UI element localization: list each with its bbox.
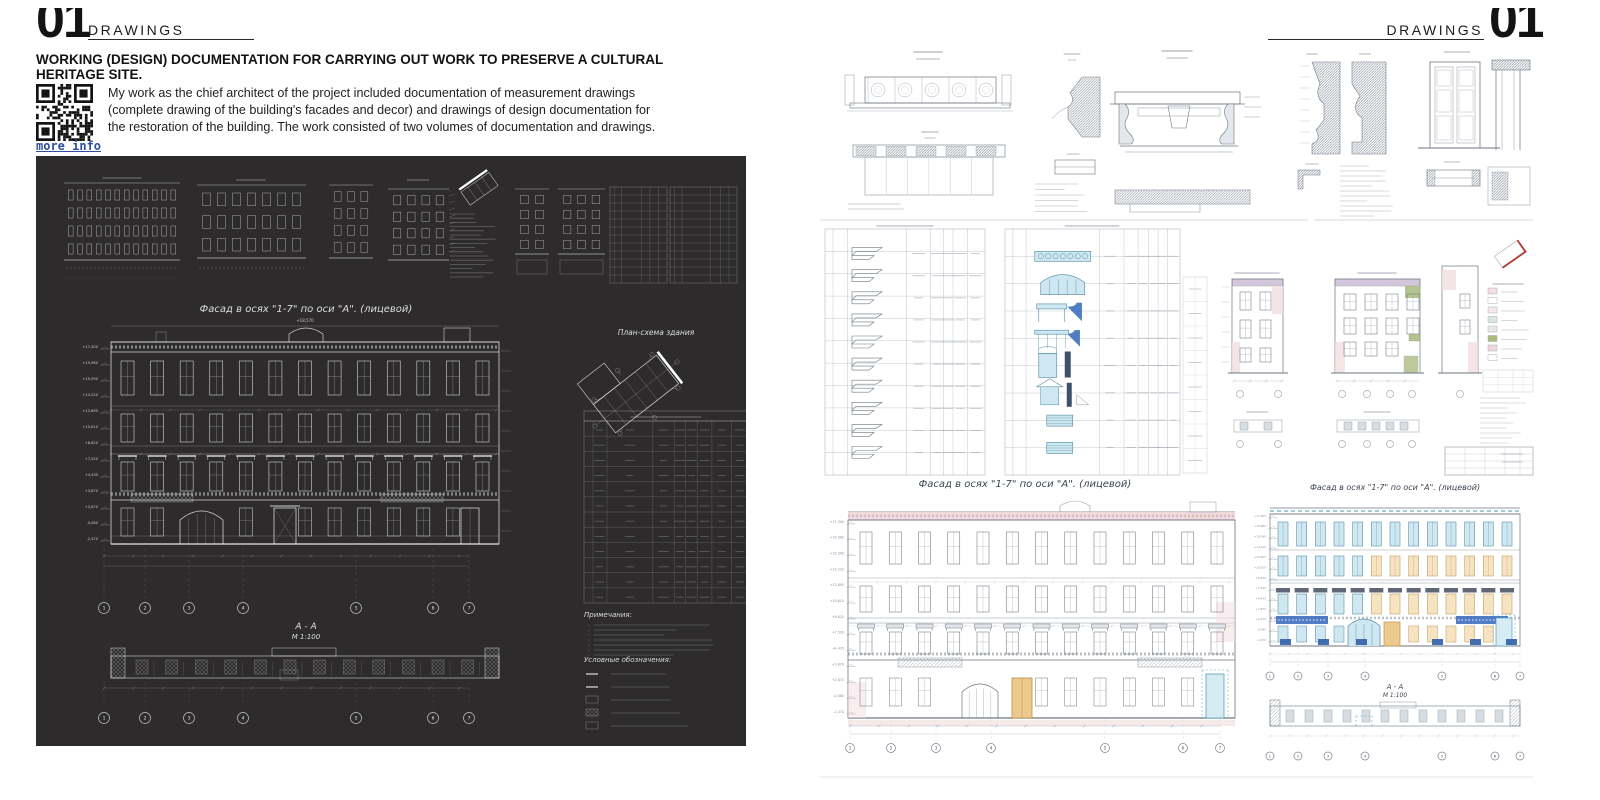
svg-text:+17,300: +17,300 (82, 345, 98, 349)
svg-text:7: 7 (1519, 753, 1522, 758)
svg-text:6: 6 (1494, 673, 1497, 678)
more-info-link[interactable]: more info (36, 139, 101, 153)
svg-text:6: 6 (1182, 745, 1185, 750)
svg-text:•: • (588, 643, 590, 647)
svg-text:•: • (588, 653, 590, 657)
svg-text:+4,435: +4,435 (1256, 596, 1267, 600)
svg-text:5: 5 (1104, 745, 1107, 750)
svg-text:+18,570: +18,570 (296, 318, 314, 323)
svg-text:+10,610: +10,610 (830, 599, 844, 603)
svg-text:+12,895: +12,895 (82, 409, 98, 413)
svg-text:1: 1 (103, 716, 106, 722)
svg-text:+14,220: +14,220 (1254, 545, 1266, 549)
section-label-left: DRAWINGS (88, 22, 184, 38)
svg-text:-2,470: -2,470 (86, 537, 98, 541)
svg-text:3: 3 (188, 606, 191, 612)
svg-text:+10,610: +10,610 (82, 425, 98, 429)
light-sheet-drawing: +17,300+15,980+15,090+14,220+12,895+10,6… (820, 42, 1535, 778)
svg-text:-0,080: -0,080 (833, 694, 844, 698)
svg-text:+12,895: +12,895 (1254, 555, 1266, 559)
svg-text:4: 4 (242, 716, 245, 722)
svg-text:3: 3 (188, 716, 191, 722)
dark-key-plan (459, 170, 498, 205)
svg-text:5: 5 (1441, 753, 1444, 758)
svg-text:3: 3 (935, 745, 938, 750)
svg-text:-0,080: -0,080 (1257, 627, 1266, 631)
portfolio-spread: 01 DRAWINGS WORKING (DESIGN) DOCUMENTATI… (0, 0, 1600, 800)
svg-text:1: 1 (103, 606, 106, 612)
svg-text:+3,870: +3,870 (832, 662, 844, 666)
light-drawing-sheet: +17,300+15,980+15,090+14,220+12,895+10,6… (820, 42, 1535, 778)
section-rule-left (88, 39, 254, 40)
svg-text:+10,610: +10,610 (1254, 565, 1266, 569)
svg-text:3: 3 (1327, 673, 1330, 678)
svg-text:+7,520: +7,520 (1256, 586, 1267, 590)
page-number-right-text: 01 (1489, 8, 1543, 46)
svg-text:3: 3 (1327, 753, 1330, 758)
svg-text:+8,620: +8,620 (85, 441, 99, 445)
svg-text:5: 5 (355, 606, 358, 612)
svg-text:-2,470: -2,470 (1257, 638, 1266, 642)
svg-text:+14,220: +14,220 (82, 393, 98, 397)
svg-text:+8,620: +8,620 (832, 615, 844, 619)
project-description: My work as the chief architect of the pr… (108, 85, 666, 136)
svg-text:5: 5 (355, 716, 358, 722)
svg-text:4: 4 (1364, 753, 1367, 758)
svg-text:+15,090: +15,090 (82, 377, 98, 381)
svg-text:5: 5 (1441, 673, 1444, 678)
section-rule-right (1268, 39, 1484, 40)
page-number-left-text: 01 (36, 8, 90, 46)
svg-text:7: 7 (1219, 745, 1222, 750)
svg-text:1: 1 (1269, 673, 1272, 678)
page-number-left: 01 (36, 8, 90, 46)
svg-text:+2,670: +2,670 (85, 505, 99, 509)
svg-text:-0,080: -0,080 (86, 521, 98, 525)
svg-text:+15,090: +15,090 (830, 551, 844, 555)
svg-text:+2,670: +2,670 (832, 678, 844, 682)
svg-text:4: 4 (1364, 673, 1367, 678)
light-key-plan (1495, 240, 1526, 268)
svg-text:•: • (588, 623, 590, 627)
project-title: WORKING (DESIGN) DOCUMENTATION FOR CARRY… (36, 52, 676, 82)
svg-text:2: 2 (144, 606, 147, 612)
svg-text:2: 2 (890, 745, 893, 750)
svg-text:+7,520: +7,520 (832, 631, 844, 635)
svg-text:+17,300: +17,300 (830, 520, 844, 524)
svg-text:•: • (588, 638, 590, 642)
svg-text:7: 7 (468, 606, 471, 612)
svg-text:+15,090: +15,090 (1254, 534, 1266, 538)
svg-text:7: 7 (468, 716, 471, 722)
svg-text:6: 6 (432, 606, 435, 612)
svg-text:2: 2 (1297, 753, 1300, 758)
svg-text:6: 6 (432, 716, 435, 722)
svg-text:+15,980: +15,980 (1254, 524, 1266, 528)
svg-text:1: 1 (849, 745, 852, 750)
svg-text:+4,435: +4,435 (832, 646, 844, 650)
svg-text:•: • (588, 628, 590, 632)
svg-text:+15,980: +15,980 (82, 361, 98, 365)
svg-text:7: 7 (1519, 673, 1522, 678)
svg-text:•: • (588, 633, 590, 637)
svg-text:+3,870: +3,870 (85, 489, 99, 493)
svg-text:+2,670: +2,670 (1256, 617, 1267, 621)
svg-text:+4,435: +4,435 (85, 473, 98, 477)
svg-text:4: 4 (242, 606, 245, 612)
svg-text:2: 2 (144, 716, 147, 722)
page-number-right: 01 (1489, 8, 1543, 46)
svg-text:+12,895: +12,895 (830, 583, 844, 587)
svg-text:+17,300: +17,300 (1254, 514, 1266, 518)
qr-code (36, 84, 93, 141)
svg-text:+3,870: +3,870 (1256, 607, 1267, 611)
dark-drawing-sheet: +18,570+17,300+15,980+15,090+14,220+12,8… (36, 156, 746, 746)
dark-plan-drawing (566, 326, 698, 453)
svg-text:+15,980: +15,980 (830, 536, 844, 540)
section-label-right: DRAWINGS (1348, 22, 1483, 38)
svg-text:6: 6 (1494, 753, 1497, 758)
svg-text:+8,620: +8,620 (1256, 576, 1267, 580)
svg-text:-2,470: -2,470 (833, 710, 844, 714)
svg-text:4: 4 (990, 745, 993, 750)
dark-sheet-drawing: +18,570+17,300+15,980+15,090+14,220+12,8… (36, 156, 746, 746)
svg-text:1: 1 (1269, 753, 1272, 758)
svg-text:2: 2 (1297, 673, 1300, 678)
svg-text:+7,520: +7,520 (85, 457, 99, 461)
svg-text:+14,220: +14,220 (830, 567, 844, 571)
svg-text:•: • (588, 648, 590, 652)
